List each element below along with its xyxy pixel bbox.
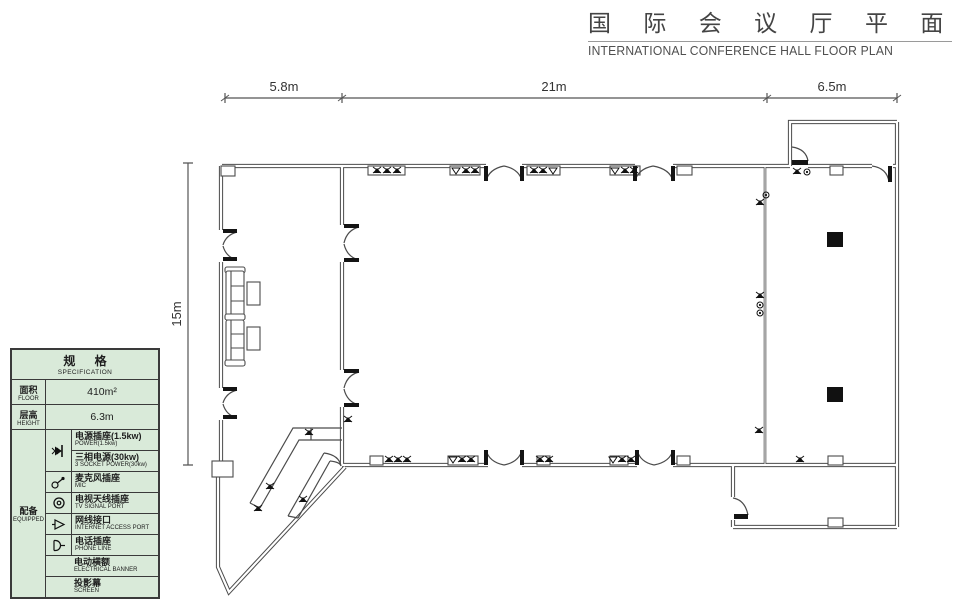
mic-icon (51, 476, 66, 489)
equip-item-label: 电源插座(1.5kw) (75, 431, 156, 441)
walls (218, 122, 897, 592)
floor-area-value: 410m² (46, 380, 158, 404)
escalator (250, 428, 342, 518)
spec-row-height: 层高 HEIGHT 6.3m (12, 404, 158, 429)
internet-port-icon (51, 518, 66, 531)
equip-item-label: 电动横额 (74, 557, 156, 567)
equip-item-label: 网线接口 (75, 515, 156, 525)
equipped-label-en: EQUIPPED (13, 517, 44, 523)
side-table (247, 282, 260, 305)
equip-row-screen: 投影幕 SCREEN (46, 576, 158, 597)
dimension-labels: 5.8m 21m 6.5m 15m (169, 79, 846, 327)
equipped-label-zh: 配备 (19, 504, 37, 517)
dim-top-right-label: 6.5m (818, 79, 847, 94)
columns (827, 232, 843, 402)
side-table (247, 327, 260, 350)
equip-item-label: 电视天线插座 (75, 494, 156, 504)
equip-item-label: 麦克风插座 (75, 473, 156, 483)
height-label-en: HEIGHT (17, 421, 40, 427)
wall-niches (212, 166, 843, 527)
door-arcs (223, 147, 889, 515)
height-label-zh: 层高 (19, 408, 37, 421)
equip-row-internet: 网线接口 INTERNET ACCESS PORT (46, 513, 158, 534)
equip-row-banner: 电动横额 ELECTRICAL BANNER (46, 555, 158, 576)
spec-header: 规 格 SPECIFICATION (12, 350, 158, 379)
equip-row-tv: 电视天线插座 TV SIGNAL PORT (46, 492, 158, 513)
dimension-lines (183, 93, 901, 465)
equip-item-label: 电话插座 (75, 536, 156, 546)
ceiling-height-value: 6.3m (46, 405, 158, 429)
dim-top-middle-label: 21m (541, 79, 566, 94)
tv-signal-icon (52, 496, 66, 510)
spec-row-equipped: 配备 EQUIPPED 电源插座(1.5kw) (12, 429, 158, 597)
equip-row-mic: 麦克风插座 MIC (46, 471, 158, 492)
spec-header-en: SPECIFICATION (12, 369, 158, 376)
specification-table: 规 格 SPECIFICATION 面积 FLOOR 410m² 层高 HEIG… (10, 348, 160, 599)
floor-label-en: FLOOR (18, 396, 39, 402)
floor-plan-page: 国 际 会 议 厅 平 面 图 INTERNATIONAL CONFERENCE… (0, 0, 961, 605)
floor-label-zh: 面积 (19, 383, 37, 396)
spec-header-zh: 规 格 (12, 352, 158, 369)
dim-left-label: 15m (169, 301, 184, 326)
equip-row-power: 电源插座(1.5kw) POWER(1.5kw) 三相电源(30kw) 3 SO… (46, 430, 158, 471)
lobby-sofas (225, 267, 260, 366)
equip-item-label: 投影幕 (74, 578, 156, 588)
equip-row-phone: 电话插座 PHONE LINE (46, 534, 158, 555)
power-socket-icon (51, 444, 67, 458)
equip-item-label: 三相电源(30kw) (75, 452, 156, 462)
dim-top-left-label: 5.8m (270, 79, 299, 94)
spec-row-floor: 面积 FLOOR 410m² (12, 379, 158, 404)
phone-line-icon (51, 539, 66, 552)
